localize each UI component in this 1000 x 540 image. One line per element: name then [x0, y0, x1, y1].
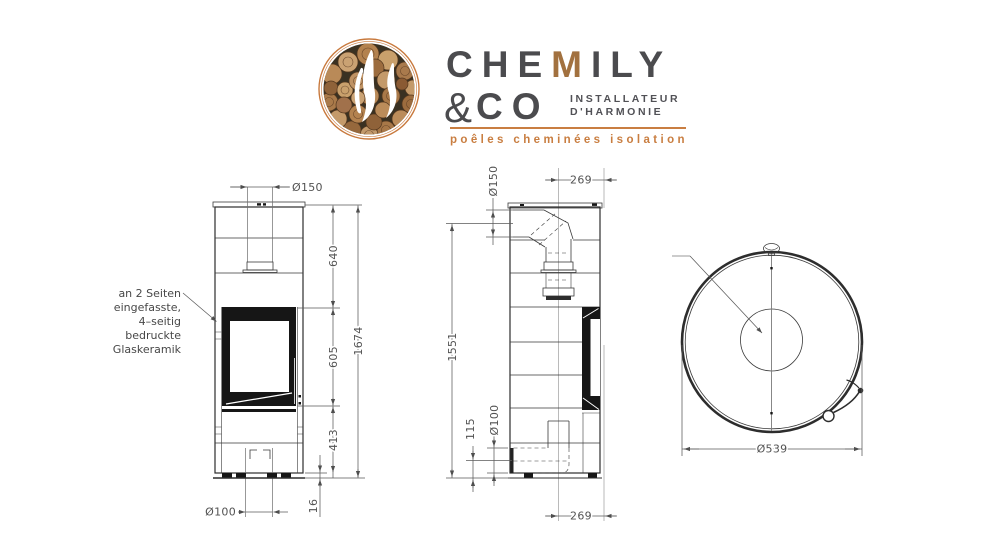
brand-name-line2: &CO: [444, 84, 550, 132]
logo-mark: [318, 38, 420, 140]
dim-front-plinth-height: 16: [307, 499, 320, 514]
tagline-line1: INSTALLATEUR: [570, 93, 680, 106]
dim-front-door-height: 605: [327, 346, 340, 368]
dim-front-base-height: 413: [327, 429, 340, 451]
flue-clamp-knob: [764, 244, 780, 256]
annotation-line-2: eingefasste,: [114, 301, 181, 314]
tagline: INSTALLATEUR D'HARMONIE: [570, 93, 680, 118]
annotation-line-5: Glaskeramik: [113, 343, 182, 356]
stove-technical-drawing: an 2 Seiten eingefasste, 4–seitig bedruc…: [0, 160, 1000, 540]
accent-rule: [450, 127, 686, 129]
brand-co: CO: [476, 86, 550, 127]
dim-front-flue-diameter: Ø150: [292, 181, 323, 194]
tagline-line2: D'HARMONIE: [570, 106, 680, 119]
air-intake-duct: [511, 421, 570, 473]
dim-front-upper-height: 640: [327, 245, 340, 267]
dim-side-flue-diameter: Ø150: [487, 166, 500, 197]
flue-leader: [690, 256, 762, 333]
top-body-circle: [682, 252, 862, 432]
dim-side-air-height: 115: [464, 418, 477, 440]
brand-name: CHEMILY: [446, 44, 672, 86]
dim-front-total-height: 1674: [352, 326, 365, 355]
dim-side-air-diameter: Ø100: [488, 405, 501, 436]
ampersand: &: [444, 84, 476, 131]
flue-elbow: [513, 210, 576, 300]
annotation-line-1: an 2 Seiten: [118, 287, 181, 300]
door-handle: [823, 380, 863, 422]
top-view: Ø539: [672, 244, 863, 457]
brand-pre: CHE: [446, 44, 551, 85]
annotation-line-3: 4–seitig: [139, 315, 181, 328]
glass-annotation: an 2 Seiten eingefasste, 4–seitig bedruc…: [113, 287, 182, 356]
brand-post: ILY: [591, 44, 672, 85]
dim-front-air-diameter: Ø100: [205, 506, 236, 519]
dim-top-body-diameter: Ø539: [757, 443, 788, 456]
annotation-leader: [183, 293, 217, 322]
dim-side-air-offset: 269: [570, 510, 592, 523]
dim-side-flue-offset: 269: [570, 174, 592, 187]
subtitle: poêles cheminées isolation: [450, 134, 688, 146]
front-view: an 2 Seiten eingefasste, 4–seitig bedruc…: [113, 181, 365, 519]
page: CHEMILY &CO INSTALLATEUR D'HARMONIE poêl…: [0, 0, 1000, 540]
brand-wood-letter: M: [551, 44, 591, 85]
annotation-line-4: bedruckte: [125, 329, 181, 342]
side-view: Ø150 269 1551 115 Ø100: [446, 166, 617, 523]
dim-side-flue-center-height: 1551: [446, 332, 459, 361]
